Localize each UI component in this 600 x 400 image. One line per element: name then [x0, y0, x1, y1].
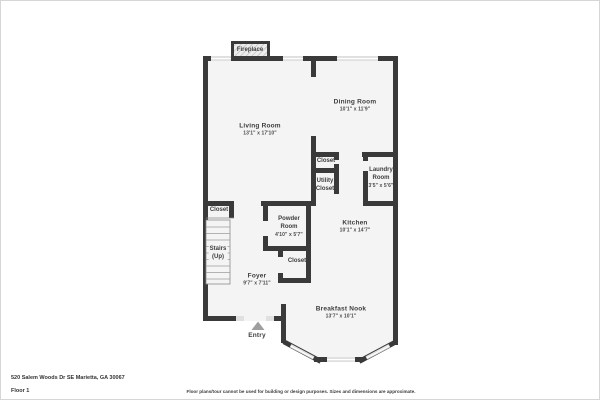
- room-label-living-room: Living Room 13'1" x 17'10": [239, 123, 281, 138]
- wall-segment: [278, 278, 311, 283]
- floorplan-svg: [1, 1, 600, 400]
- wall-segment: [363, 201, 398, 206]
- wall-segment: [363, 157, 368, 161]
- door-jamb: [266, 316, 274, 321]
- room-label-closet-foyer: Closet: [288, 258, 306, 266]
- wall-segment: [311, 152, 339, 157]
- wall-segment: [278, 251, 283, 257]
- wall-segment: [334, 172, 339, 194]
- room-label-utility-closet: Utility Closet: [316, 178, 334, 194]
- room-label-stairs: Stairs (Up): [209, 246, 228, 262]
- room-label-dining-room: Dining Room 10'1" x 11'9": [334, 99, 377, 114]
- window: [337, 56, 378, 61]
- window: [283, 56, 303, 61]
- wall-segment: [306, 206, 311, 283]
- wall-segment: [263, 236, 268, 246]
- wall-segment: [229, 206, 234, 218]
- room-label-closet-entry: Closet: [210, 207, 228, 215]
- address-text: 520 Salem Woods Dr SE Marietta, GA 30067: [11, 375, 125, 381]
- entry-arrow-icon: [252, 322, 265, 331]
- wall-segment: [362, 152, 398, 157]
- window: [327, 357, 355, 362]
- wall-segment: [393, 56, 398, 345]
- entry-label: Entry: [248, 332, 266, 340]
- fireplace-label: Fireplace: [237, 47, 263, 55]
- wall-segment: [203, 316, 236, 321]
- disclaimer-text: Floor plans/tour cannot be used for buil…: [187, 389, 416, 394]
- wall-segment: [263, 246, 311, 251]
- wall-segment: [281, 304, 286, 343]
- room-label-laundry-room: Laundry Room 3'5" x 5'6": [369, 167, 394, 189]
- wall-segment: [363, 171, 368, 206]
- room-label-closet-hall: Closet: [317, 158, 335, 166]
- floor-label: Floor 1: [11, 388, 29, 394]
- room-label-breakfast-nook: Breakfast Nook 13'7" x 10'1": [316, 306, 366, 321]
- wall-segment: [263, 206, 268, 221]
- room-label-kitchen: Kitchen 10'1" x 14'7": [340, 220, 371, 235]
- wall-segment: [311, 56, 316, 77]
- room-label-powder-room: Powder Room 4'10" x 5'7": [275, 216, 303, 238]
- wall-segment: [261, 201, 316, 206]
- window: [211, 56, 231, 61]
- room-label-foyer: Foyer 9'7" x 7'11": [243, 273, 271, 288]
- door-jamb: [236, 316, 244, 321]
- floorplan-page: Fireplace Living Room 13'1" x 17'10" Din…: [0, 0, 600, 400]
- wall-segment: [203, 201, 234, 206]
